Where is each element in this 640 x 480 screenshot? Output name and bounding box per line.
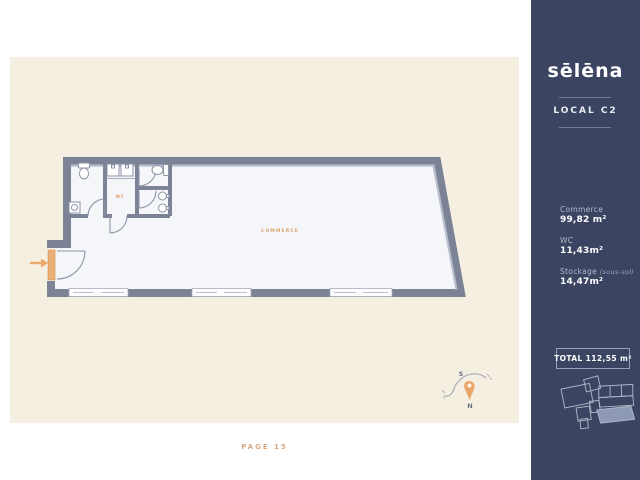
- entry-arrow-icon: [30, 259, 48, 268]
- stat-value: 14,47m²: [560, 277, 638, 287]
- toilet-bowl: [152, 166, 163, 175]
- building-locator-minimap: [555, 374, 635, 442]
- exterior-wall-outline: [51, 161, 461, 293]
- stat-wc: WC 11,43m²: [560, 236, 638, 256]
- compass-south-label: S: [459, 370, 464, 378]
- divider: [559, 97, 611, 98]
- stat-note: (sous-sol): [600, 268, 634, 276]
- minimap-building: [599, 396, 634, 407]
- commerce-room-label: COMMERCE: [261, 228, 299, 234]
- info-sidebar: sēlēna LOCAL C2 Commerce 99,82 m² WC 11,…: [531, 0, 640, 480]
- total-area-badge: TOTAL 112,55 m²: [556, 348, 630, 369]
- toilet-tank: [79, 163, 90, 168]
- minimap-building: [561, 383, 593, 408]
- window: [69, 289, 128, 297]
- storefront-windows: [69, 289, 392, 297]
- unit-title: LOCAL C2: [531, 106, 640, 116]
- round-basin: [159, 192, 167, 200]
- minimap-highlighted-unit: [597, 406, 635, 423]
- window: [330, 289, 392, 297]
- stat-label: Commerce: [560, 205, 603, 214]
- divider: [559, 127, 611, 128]
- stat-commerce: Commerce 99,82 m²: [560, 205, 638, 225]
- compass-icon: S N o e: [442, 370, 492, 410]
- toilet-bowl: [80, 168, 89, 179]
- round-basin: [159, 204, 167, 212]
- selena-logo: sēlēna: [531, 60, 640, 82]
- compass-east-label: e: [490, 377, 492, 381]
- window: [192, 289, 251, 297]
- stat-stockage: Stockage (sous-sol) 14,47m²: [560, 267, 638, 287]
- stat-value: 99,82 m²: [560, 215, 638, 225]
- floor-plan-walls: [51, 161, 461, 293]
- entry-door-leaf: [48, 250, 55, 280]
- stat-value: 11,43m²: [560, 246, 638, 256]
- toilet-tank: [164, 165, 169, 176]
- page-number: PAGE 15: [10, 443, 519, 451]
- stat-label: Stockage: [560, 267, 597, 276]
- wc-room-label: WC: [116, 194, 125, 199]
- surface-stats: Commerce 99,82 m² WC 11,43m² Stockage (s…: [560, 205, 638, 298]
- compass-north-label: N: [467, 402, 472, 410]
- compass-west-label: o: [443, 396, 445, 400]
- stat-label: WC: [560, 236, 573, 245]
